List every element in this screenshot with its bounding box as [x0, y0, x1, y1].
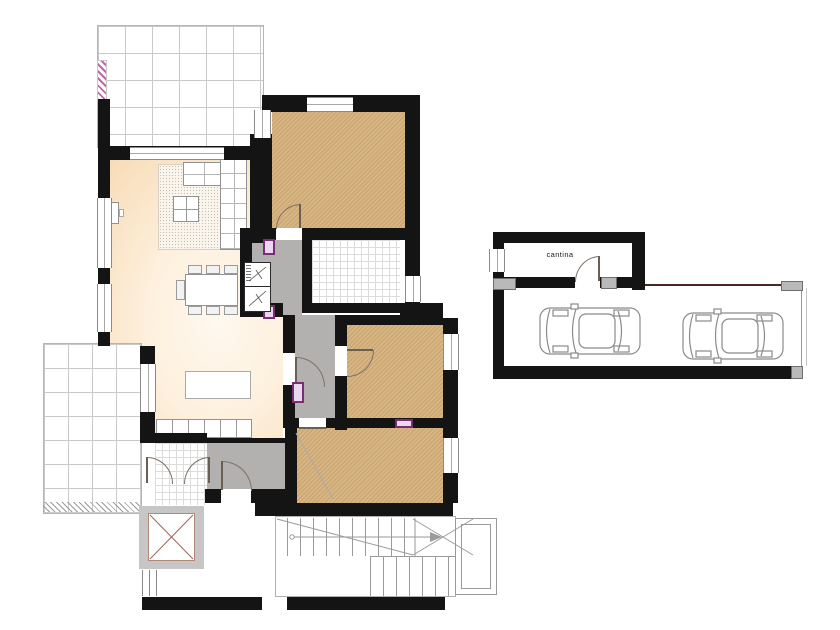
dining-chair [176, 280, 185, 300]
wall [287, 597, 445, 610]
carport-edge-line [645, 284, 781, 286]
terrace-left [43, 343, 142, 514]
carport-open-side-outer [806, 288, 807, 366]
window [307, 97, 353, 112]
dining-chair [224, 265, 238, 274]
window [97, 198, 112, 268]
cantina-room-label: cantina [510, 250, 610, 259]
dining-chair [206, 306, 220, 315]
carport-pillar [493, 278, 516, 290]
wall [255, 503, 453, 516]
terrace-left-ground-hatch [43, 502, 140, 512]
wall [250, 134, 272, 243]
vestibule-door-leaf [208, 457, 210, 483]
dining-chair [188, 306, 202, 315]
carport-wall-bottom [493, 366, 803, 379]
wall [335, 315, 443, 325]
wall [302, 240, 312, 303]
carport-pillar [791, 366, 803, 379]
car-icon [540, 304, 640, 358]
dining-table [185, 274, 238, 306]
cantina-door-leaf [598, 256, 600, 281]
carport-pillar [781, 281, 803, 291]
door-opening [335, 346, 347, 376]
main-door-opening [221, 489, 251, 503]
elevator-cab [148, 513, 195, 561]
door-marker [395, 419, 413, 428]
door-opening [276, 228, 302, 240]
door-leaf [347, 349, 373, 351]
shaft-grille [246, 265, 251, 283]
bathroom [312, 240, 400, 303]
stairs-landing-planter-inner [461, 524, 491, 589]
cantina-window [489, 249, 505, 272]
door-leaf [299, 427, 326, 429]
wall [140, 433, 207, 443]
cantina-door-arc [575, 256, 600, 282]
carport-pillar [601, 277, 617, 289]
window [130, 147, 224, 160]
terrace-top [97, 25, 264, 148]
stairs-upper-treads [287, 518, 415, 556]
tv-unit [111, 202, 119, 224]
window [97, 284, 112, 332]
tv-stand [119, 209, 124, 217]
bedroom-bottom [297, 428, 443, 503]
steps-small [142, 570, 162, 596]
window [140, 364, 156, 412]
wall [285, 428, 297, 503]
coffee-table [173, 196, 199, 222]
kitchen-island [185, 371, 251, 399]
door-leaf [299, 204, 301, 228]
dining-chair [188, 265, 202, 274]
door-marker [292, 382, 304, 403]
floor-plan: cantina [0, 0, 840, 630]
door-opening [283, 353, 295, 385]
stairs-lower-treads [370, 556, 455, 596]
shaft-divider [245, 286, 270, 287]
window [405, 276, 421, 302]
dining-chair [224, 306, 238, 315]
main-door-leaf [221, 461, 223, 490]
window [443, 438, 459, 473]
dining-chair [206, 265, 220, 274]
car-icon [683, 309, 783, 363]
terrace-door-leaf [146, 457, 148, 483]
door-marker [263, 239, 275, 255]
cantina-wall-top [493, 232, 645, 243]
railing-pink-hatch [97, 60, 107, 102]
carport-open-side [801, 291, 802, 366]
window [254, 110, 271, 138]
wall [142, 597, 262, 610]
window [443, 334, 459, 370]
wall [207, 438, 285, 443]
wall [400, 303, 443, 315]
